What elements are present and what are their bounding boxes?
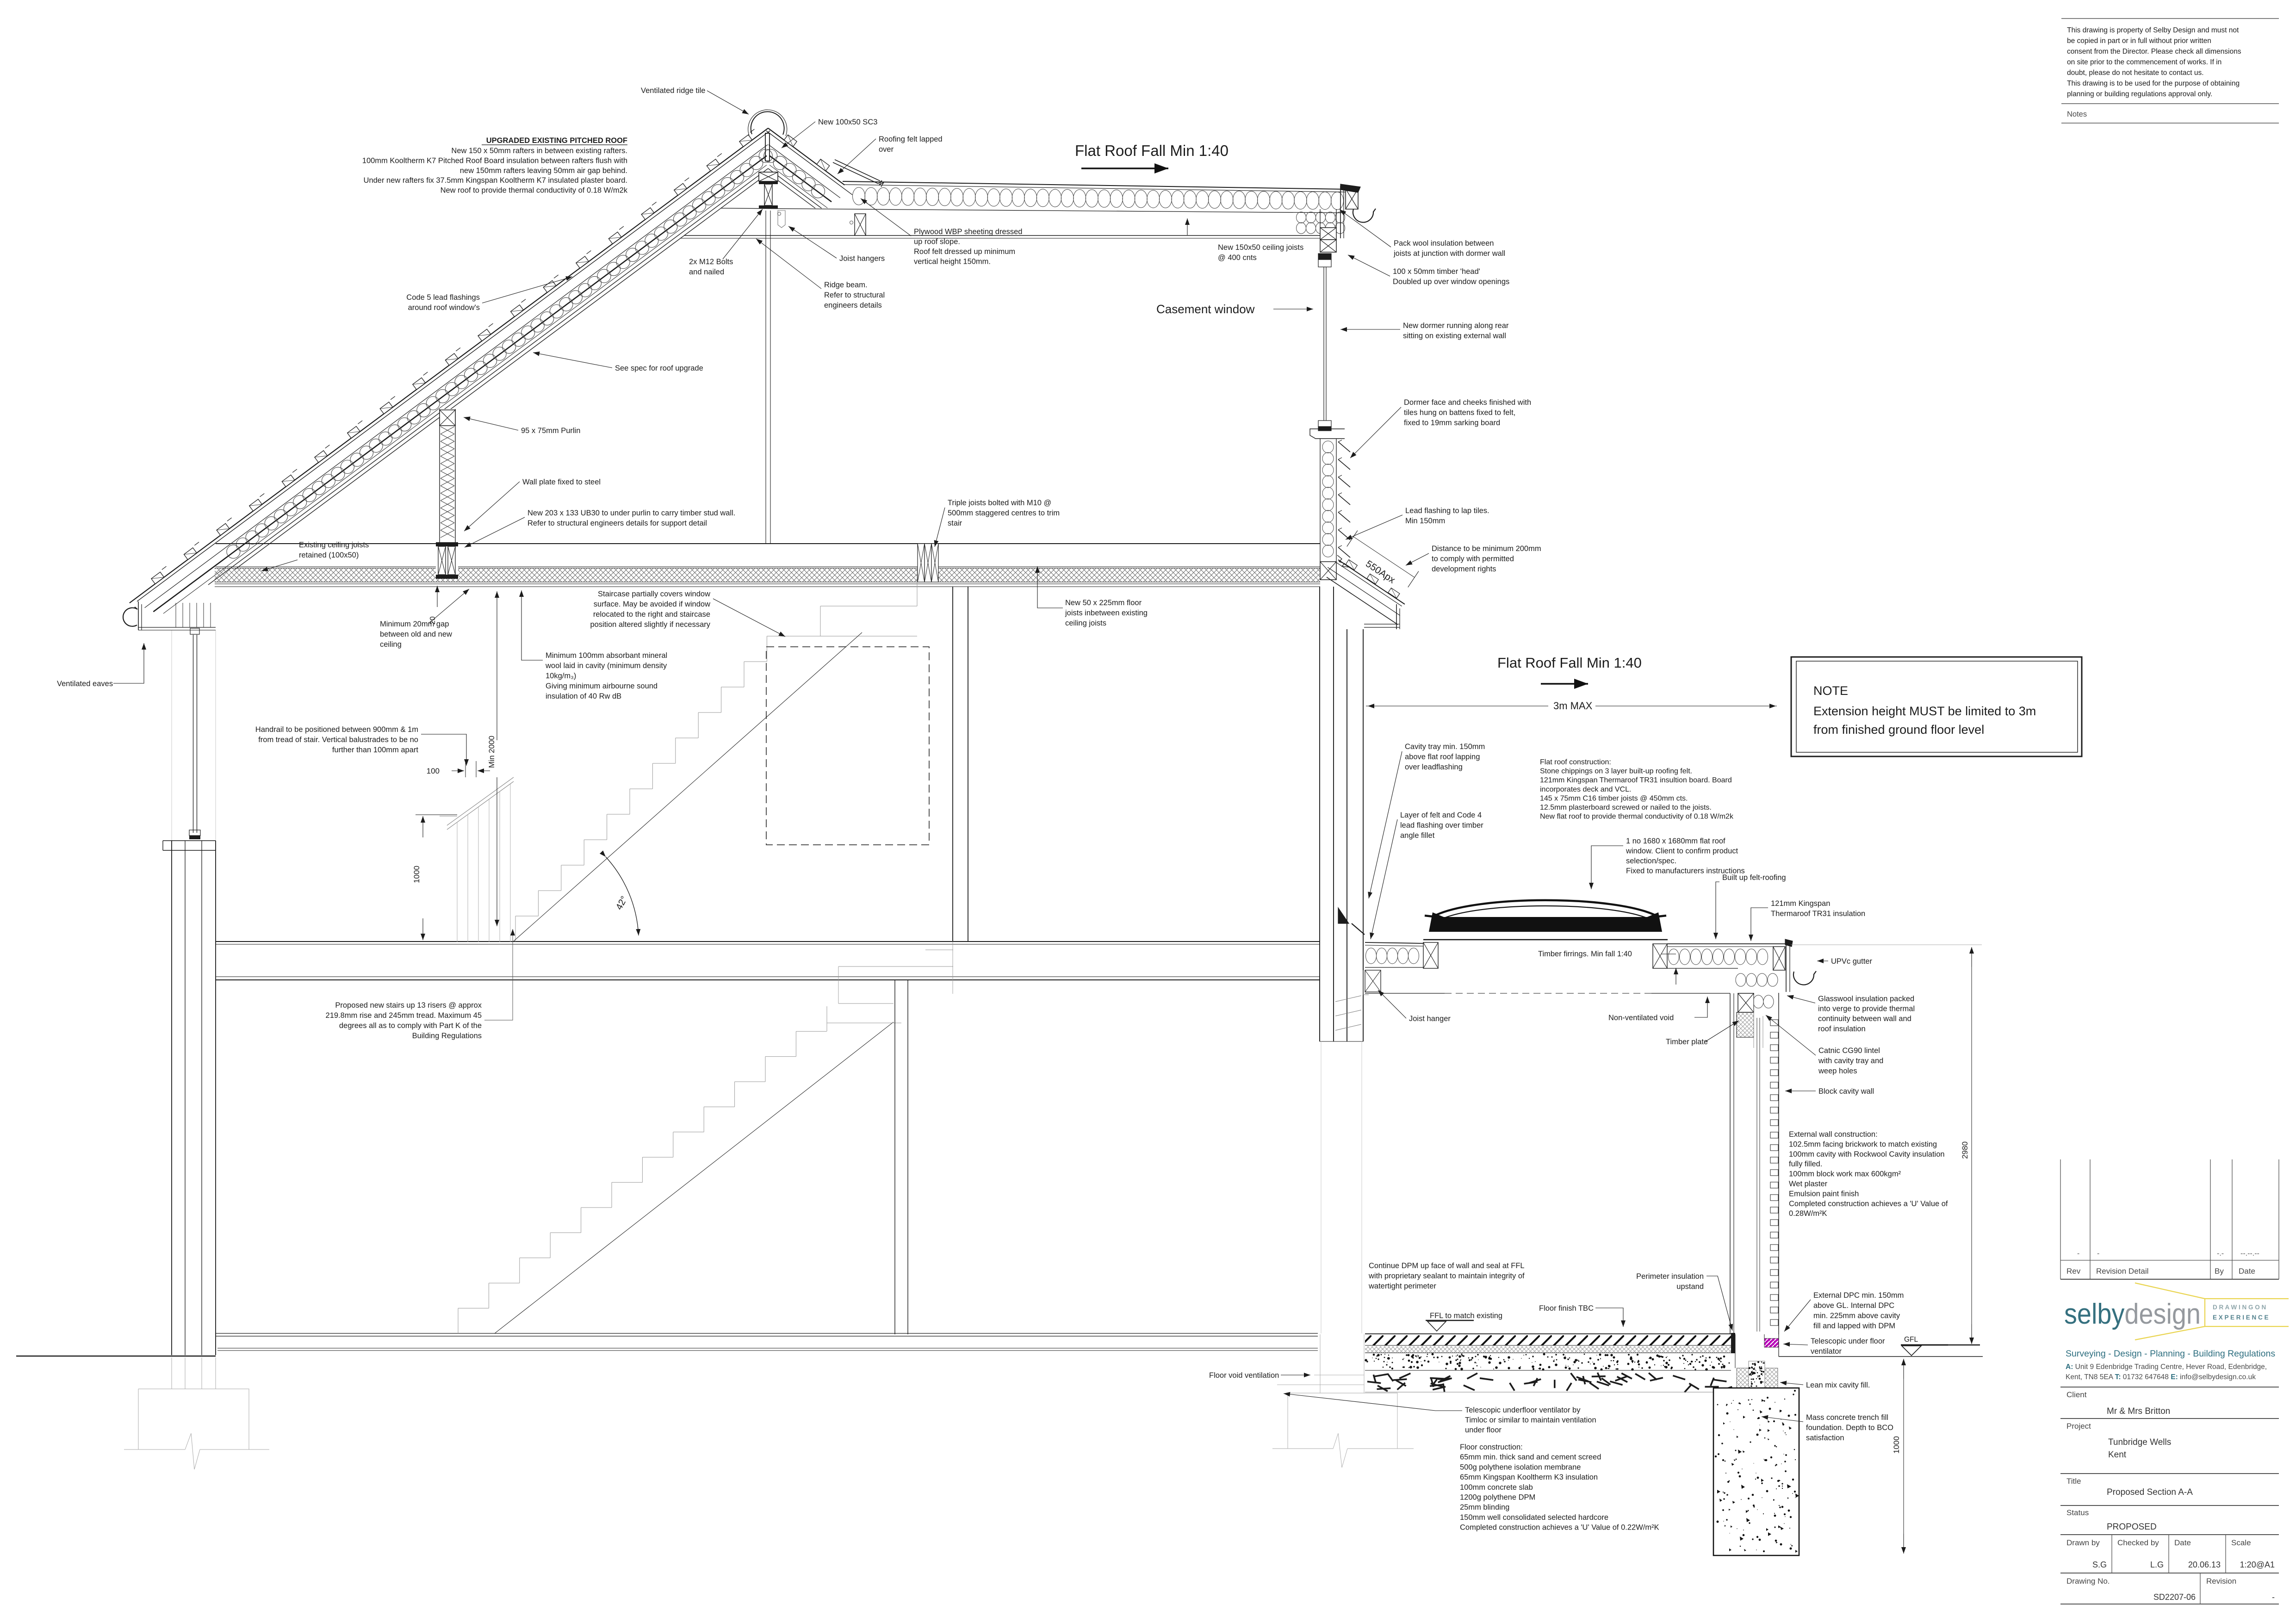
svg-text:between old and new: between old and new bbox=[380, 630, 452, 638]
svg-text:lead flashing over timber: lead flashing over timber bbox=[1400, 821, 1483, 830]
svg-text:External wall construction:: External wall construction: bbox=[1789, 1130, 1878, 1139]
svg-text:-.-: -.- bbox=[2217, 1250, 2224, 1258]
svg-text:New 203 x 133 UB30 to under pu: New 203 x 133 UB30 to under purlin to ca… bbox=[527, 509, 735, 517]
svg-text:Drawing No.: Drawing No. bbox=[2066, 1577, 2110, 1586]
svg-text:Block cavity wall: Block cavity wall bbox=[1818, 1087, 1874, 1096]
svg-text:@ 400 cnts: @ 400 cnts bbox=[1218, 254, 1257, 262]
svg-text:with cavity tray and: with cavity tray and bbox=[1818, 1057, 1883, 1065]
svg-text:Wet plaster: Wet plaster bbox=[1789, 1180, 1828, 1188]
svg-text:Surveying - Design - Planning: Surveying - Design - Planning - Building… bbox=[2066, 1349, 2275, 1359]
svg-text:Non-ventilated void: Non-ventilated void bbox=[1608, 1014, 1674, 1022]
svg-text:Ventilated eaves: Ventilated eaves bbox=[57, 680, 113, 688]
svg-text:fixed to 19mm sarking board: fixed to 19mm sarking board bbox=[1404, 419, 1500, 427]
svg-text:UPGRADED EXISTING PITCHED ROOF: UPGRADED EXISTING PITCHED ROOF bbox=[486, 136, 627, 145]
svg-text:relocated to the right and sta: relocated to the right and staircase bbox=[593, 610, 710, 619]
svg-text:95 x 75mm Purlin: 95 x 75mm Purlin bbox=[521, 427, 580, 435]
svg-text:145 x 75mm C16 timber joists: 145 x 75mm C16 timber joists @ 450mm cts… bbox=[1540, 794, 1688, 802]
svg-text:Ventilated ridge tile: Ventilated ridge tile bbox=[641, 87, 705, 95]
svg-text:Built up felt-roofing: Built up felt-roofing bbox=[1722, 873, 1786, 882]
svg-text:121mm Kingspan Thermaroof TR31: 121mm Kingspan Thermaroof TR31 insultion… bbox=[1540, 776, 1732, 784]
svg-text:Minimum 100mm absorbant minera: Minimum 100mm absorbant mineral bbox=[546, 651, 667, 660]
svg-text:new 150mm rafters leaving 50mm: new 150mm rafters leaving 50mm air gap b… bbox=[460, 167, 627, 175]
svg-text:100mm Kooltherm K7 Pitched Roo: 100mm Kooltherm K7 Pitched Roof Board in… bbox=[362, 156, 627, 165]
svg-text:Continue DPM up face of wall a: Continue DPM up face of wall and seal at… bbox=[1369, 1262, 1525, 1270]
svg-text:Building Regulations: Building Regulations bbox=[412, 1032, 482, 1040]
svg-text:selection/spec.: selection/spec. bbox=[1626, 857, 1676, 865]
svg-text:Emulsion paint finish: Emulsion paint finish bbox=[1789, 1189, 1859, 1198]
svg-text:Handrail to be positioned betw: Handrail to be positioned between 900mm … bbox=[255, 725, 418, 734]
svg-text:stair: stair bbox=[948, 519, 962, 527]
svg-text:upstand: upstand bbox=[1676, 1282, 1704, 1291]
svg-text:selbydesign: selbydesign bbox=[2064, 1298, 2201, 1330]
svg-text:joists at junction with dormer: joists at junction with dormer wall bbox=[1393, 249, 1505, 258]
svg-text:150mm well consolidated select: 150mm well consolidated selected hardcor… bbox=[1460, 1513, 1608, 1522]
svg-text:FFL to match existing: FFL to match existing bbox=[1430, 1312, 1502, 1320]
svg-text:Proposed new stairs up 13 rise: Proposed new stairs up 13 risers @ appro… bbox=[335, 1001, 482, 1010]
svg-text:Doubled up over window opening: Doubled up over window openings bbox=[1393, 278, 1509, 286]
svg-text:New dormer running along rear: New dormer running along rear bbox=[1403, 322, 1509, 330]
svg-text:E X P E R I E N C E: E X P E R I E N C E bbox=[2213, 1314, 2269, 1321]
svg-text:tiles hung on battens fixed to: tiles hung on battens fixed to felt, bbox=[1404, 409, 1515, 417]
svg-text:Flat Roof Fall Min 1:40: Flat Roof Fall Min 1:40 bbox=[1497, 655, 1642, 671]
svg-text:Floor void ventilation: Floor void ventilation bbox=[1209, 1371, 1279, 1380]
svg-text:vertical height 150mm.: vertical height 150mm. bbox=[914, 258, 991, 266]
svg-text:above GL. Internal DPC: above GL. Internal DPC bbox=[1813, 1301, 1894, 1310]
svg-text:Wall plate fixed to steel: Wall plate fixed to steel bbox=[522, 478, 601, 486]
svg-text:Flat Roof Fall Min 1:40: Flat Roof Fall Min 1:40 bbox=[1075, 142, 1229, 159]
svg-text:foundation. Depth to BCO: foundation. Depth to BCO bbox=[1806, 1424, 1893, 1432]
svg-text:New 100x50 SC3: New 100x50 SC3 bbox=[818, 118, 877, 126]
svg-text:Catnic CG90 lintel: Catnic CG90 lintel bbox=[1818, 1047, 1880, 1055]
svg-text:weep holes: weep holes bbox=[1818, 1067, 1857, 1075]
svg-text:Timber plate: Timber plate bbox=[1666, 1038, 1708, 1046]
svg-text:3m MAX: 3m MAX bbox=[1553, 700, 1593, 712]
svg-text:incorporates deck and VCL.: incorporates deck and VCL. bbox=[1540, 786, 1631, 793]
svg-text:Telescopic under floor: Telescopic under floor bbox=[1811, 1337, 1885, 1345]
svg-text:Minimum 20mm gap: Minimum 20mm gap bbox=[380, 620, 449, 628]
svg-text:min. 225mm above cavity: min. 225mm above cavity bbox=[1813, 1312, 1900, 1320]
svg-text:Min 150mm: Min 150mm bbox=[1405, 517, 1445, 525]
svg-text:Glasswool insulation packed: Glasswool insulation packed bbox=[1818, 995, 1914, 1003]
svg-text:1200g polythene DPM: 1200g polythene DPM bbox=[1460, 1493, 1535, 1502]
svg-text:20.06.13: 20.06.13 bbox=[2188, 1560, 2221, 1569]
svg-text:fill and lapped with DPM: fill and lapped with DPM bbox=[1813, 1322, 1895, 1330]
svg-text:Status: Status bbox=[2066, 1508, 2089, 1517]
svg-text:S.G: S.G bbox=[2092, 1560, 2107, 1569]
svg-text:on site prior to the commencem: on site prior to the commencement of wor… bbox=[2067, 58, 2222, 66]
svg-text:Scale: Scale bbox=[2231, 1538, 2251, 1547]
svg-text:watertight perimeter: watertight perimeter bbox=[1368, 1282, 1436, 1290]
svg-text:New 150 x 50mm rafters in betw: New 150 x 50mm rafters in between existi… bbox=[451, 147, 627, 155]
svg-text:Telescopic underfloor ventilat: Telescopic underfloor ventilator by bbox=[1465, 1406, 1581, 1414]
svg-text:sitting on existing external w: sitting on existing external wall bbox=[1403, 332, 1506, 340]
svg-text:Completed construction achieve: Completed construction achieves a 'U' Va… bbox=[1460, 1524, 1659, 1532]
svg-text:100 x 50mm timber 'head': 100 x 50mm timber 'head' bbox=[1393, 267, 1480, 276]
svg-text:ventilator: ventilator bbox=[1811, 1347, 1842, 1356]
svg-text:25mm blinding: 25mm blinding bbox=[1460, 1503, 1509, 1511]
svg-text:Refer to structural: Refer to structural bbox=[824, 291, 885, 299]
svg-text:joists inbetween existing: joists inbetween existing bbox=[1065, 609, 1148, 617]
svg-text:New 50 x 225mm floor: New 50 x 225mm floor bbox=[1065, 599, 1142, 607]
svg-text:surface. May be avoided if win: surface. May be avoided if window bbox=[594, 600, 710, 608]
svg-text:D R A W I N G O N: D R A W I N G O N bbox=[2213, 1304, 2266, 1311]
svg-text:retained (100x50): retained (100x50) bbox=[299, 551, 359, 559]
svg-text:UPVc gutter: UPVc gutter bbox=[1831, 957, 1872, 966]
svg-text:New 150x50 ceiling joists: New 150x50 ceiling joists bbox=[1218, 243, 1303, 252]
svg-text:Kent: Kent bbox=[2108, 1450, 2127, 1460]
svg-text:satisfaction: satisfaction bbox=[1806, 1434, 1844, 1442]
svg-text:Date: Date bbox=[2174, 1538, 2191, 1547]
svg-text:Title: Title bbox=[2066, 1477, 2081, 1486]
svg-text:Mass concrete trench fill: Mass concrete trench fill bbox=[1806, 1413, 1888, 1422]
svg-text:Triple joists bolted with M10: Triple joists bolted with M10 @ bbox=[948, 499, 1051, 507]
svg-text:GFL: GFL bbox=[1904, 1336, 1918, 1344]
svg-text:Staircase partially covers win: Staircase partially covers window bbox=[598, 590, 710, 598]
svg-text:Under new rafters fix 37.5mm K: Under new rafters fix 37.5mm Kingspan Ko… bbox=[364, 176, 627, 185]
svg-text:Project: Project bbox=[2066, 1422, 2091, 1431]
svg-text:further than 100mm apart: further than 100mm apart bbox=[332, 746, 419, 754]
svg-text:Drawn by: Drawn by bbox=[2066, 1538, 2100, 1547]
svg-text:12.5mm plasterboard screwed or: 12.5mm plasterboard screwed or nailed to… bbox=[1540, 804, 1712, 811]
svg-text:Proposed Section A-A: Proposed Section A-A bbox=[2107, 1487, 2193, 1497]
svg-text:Revision Detail: Revision Detail bbox=[2096, 1267, 2148, 1276]
svg-text:Layer of felt and Code 4: Layer of felt and Code 4 bbox=[1400, 811, 1482, 819]
svg-text:roof insulation: roof insulation bbox=[1818, 1025, 1866, 1033]
svg-text:under floor: under floor bbox=[1465, 1426, 1502, 1434]
svg-text:continuity between wall and: continuity between wall and bbox=[1818, 1015, 1911, 1023]
svg-text:ceiling joists: ceiling joists bbox=[1065, 619, 1106, 627]
svg-text:10kg/m₃): 10kg/m₃) bbox=[546, 672, 576, 680]
svg-text:Min 2000: Min 2000 bbox=[487, 736, 496, 768]
svg-text:Floor finish TBC: Floor finish TBC bbox=[1539, 1304, 1594, 1313]
svg-text:NOTE: NOTE bbox=[1813, 684, 1848, 698]
svg-text:0.28W/m²K: 0.28W/m²K bbox=[1789, 1209, 1827, 1218]
svg-text:Mr & Mrs Britton: Mr & Mrs Britton bbox=[2107, 1406, 2170, 1416]
svg-text:1:20@A1: 1:20@A1 bbox=[2240, 1560, 2275, 1569]
svg-text:wool laid in cavity (minimum d: wool laid in cavity (minimum density bbox=[545, 662, 667, 670]
svg-text:100mm block work max 600kgm²: 100mm block work max 600kgm² bbox=[1789, 1170, 1901, 1178]
svg-text:Thermaroof TR31 insulation: Thermaroof TR31 insulation bbox=[1771, 910, 1865, 918]
svg-text:See spec for roof upgrade: See spec for roof upgrade bbox=[615, 364, 703, 372]
svg-text:65mm min. thick sand and cemen: 65mm min. thick sand and cement screed bbox=[1460, 1453, 1601, 1462]
svg-text:L.G: L.G bbox=[2150, 1560, 2164, 1569]
svg-text:over leadflashing: over leadflashing bbox=[1405, 763, 1463, 771]
svg-text:PROPOSED: PROPOSED bbox=[2107, 1522, 2157, 1532]
svg-text:Roof felt dressed up minimum: Roof felt dressed up minimum bbox=[914, 248, 1015, 256]
svg-text:2x M12 Bolts: 2x M12 Bolts bbox=[689, 258, 733, 266]
svg-text:Joist hanger: Joist hanger bbox=[1409, 1015, 1451, 1023]
svg-text:planning or building regulatio: planning or building regulations approva… bbox=[2067, 90, 2212, 98]
svg-text:By: By bbox=[2215, 1267, 2224, 1276]
svg-text:100mm cavity with Rockwool Cav: 100mm cavity with Rockwool Cavity insula… bbox=[1789, 1150, 1945, 1158]
svg-text:Floor construction:: Floor construction: bbox=[1460, 1443, 1523, 1451]
svg-text:65mm Kingspan Kooltherm K3 ins: 65mm Kingspan Kooltherm K3 insulation bbox=[1460, 1473, 1598, 1481]
svg-text:Pack wool insulation between: Pack wool insulation between bbox=[1394, 239, 1494, 248]
svg-text:Revision: Revision bbox=[2206, 1577, 2236, 1586]
svg-text:fully filled.: fully filled. bbox=[1789, 1160, 1822, 1168]
svg-text:-: - bbox=[2077, 1250, 2079, 1258]
svg-text:and nailed: and nailed bbox=[689, 268, 724, 276]
svg-text:Date: Date bbox=[2239, 1267, 2255, 1276]
svg-text:Tunbridge Wells: Tunbridge Wells bbox=[2108, 1437, 2171, 1447]
svg-text:Perimeter insulation: Perimeter insulation bbox=[1636, 1272, 1704, 1281]
svg-text:Joist hangers: Joist hangers bbox=[839, 254, 885, 263]
svg-text:121mm Kingspan: 121mm Kingspan bbox=[1771, 899, 1830, 908]
svg-text:Code 5 lead flashings: Code 5 lead flashings bbox=[406, 293, 480, 302]
svg-text:SD2207-06: SD2207-06 bbox=[2153, 1592, 2196, 1602]
svg-text:100: 100 bbox=[427, 767, 440, 775]
svg-text:engineers details: engineers details bbox=[824, 301, 882, 310]
svg-text:Stone chippings on 3 layer bui: Stone chippings on 3 layer built-up roof… bbox=[1540, 768, 1692, 775]
svg-text:Notes: Notes bbox=[2067, 110, 2087, 118]
svg-text:angle fillet: angle fillet bbox=[1400, 831, 1435, 840]
svg-text:position altered slightly if n: position altered slightly if necessary bbox=[590, 620, 710, 629]
svg-text:--.--.--: --.--.-- bbox=[2240, 1250, 2259, 1258]
svg-text:1000: 1000 bbox=[412, 866, 421, 883]
svg-text:This drawing is to be used for: This drawing is to be used for the purpo… bbox=[2067, 80, 2240, 87]
svg-text:New flat roof to provide therm: New flat roof to provide thermal conduct… bbox=[1540, 813, 1734, 821]
svg-text:from tread of stair. Vertical: from tread of stair. Vertical balustrade… bbox=[258, 736, 418, 744]
svg-text:Plywood WBP sheeting dressed: Plywood WBP sheeting dressed bbox=[914, 228, 1023, 236]
svg-text:around roof window's: around roof window's bbox=[408, 304, 480, 312]
svg-text:A: Unit 9 Edenbridge Trading C: A: Unit 9 Edenbridge Trading Centre, Hev… bbox=[2066, 1363, 2267, 1371]
svg-text:ceiling: ceiling bbox=[380, 640, 402, 649]
svg-text:Timloc or similar to maintain: Timloc or similar to maintain ventilatio… bbox=[1465, 1416, 1596, 1425]
svg-text:Checked by: Checked by bbox=[2117, 1538, 2159, 1547]
svg-text:102.5mm facing brickwork to ma: 102.5mm facing brickwork to match existi… bbox=[1789, 1140, 1937, 1148]
svg-text:Completed construction achieve: Completed construction achieves a 'U' Va… bbox=[1789, 1200, 1948, 1208]
svg-text:Casement window: Casement window bbox=[1156, 302, 1255, 316]
svg-text:be copied in part or in full w: be copied in part or in full without pri… bbox=[2067, 37, 2211, 45]
svg-text:degrees all as to comply with: degrees all as to comply with Part K of … bbox=[339, 1022, 482, 1030]
svg-text:This drawing is property of Se: This drawing is property of Selby Design… bbox=[2067, 26, 2239, 34]
svg-text:to comply with permitted: to comply with permitted bbox=[1432, 555, 1514, 563]
svg-text:Dormer face and cheeks finishe: Dormer face and cheeks finished with bbox=[1404, 398, 1531, 407]
svg-text:insulation of 40 Rw dB: insulation of 40 Rw dB bbox=[546, 692, 621, 700]
svg-text:development rights: development rights bbox=[1432, 565, 1496, 573]
svg-text:over: over bbox=[879, 145, 894, 154]
svg-text:Kent, TN8 5EA T: 01732 64764: Kent, TN8 5EA T: 01732 647648 E: info@se… bbox=[2066, 1373, 2256, 1381]
svg-text:with proprietary sealant to ma: with proprietary sealant to maintain int… bbox=[1368, 1272, 1525, 1280]
svg-text:Cavity tray min. 150mm: Cavity tray min. 150mm bbox=[1405, 743, 1485, 751]
svg-text:100mm concrete slab: 100mm concrete slab bbox=[1460, 1483, 1533, 1492]
svg-text:consent from the Director. Ple: consent from the Director. Please check … bbox=[2067, 48, 2241, 56]
svg-text:2980: 2980 bbox=[1961, 1141, 1969, 1159]
svg-text:Roofing felt lapped: Roofing felt lapped bbox=[879, 135, 943, 143]
svg-text:External DPC min. 150mm: External DPC min. 150mm bbox=[1813, 1291, 1904, 1300]
svg-text:500g polythene isolation membr: 500g polythene isolation membrane bbox=[1460, 1463, 1581, 1471]
svg-text:1 no 1680 x 1680mm flat roof: 1 no 1680 x 1680mm flat roof bbox=[1626, 837, 1725, 845]
svg-text:Giving minimum airbourne sound: Giving minimum airbourne sound bbox=[546, 682, 658, 690]
svg-text:-: - bbox=[2097, 1250, 2099, 1258]
svg-text:from finished ground floor lev: from finished ground floor level bbox=[1813, 723, 1984, 737]
svg-text:above flat roof lapping: above flat roof lapping bbox=[1405, 753, 1480, 761]
svg-text:window. Client to confirm prod: window. Client to confirm product bbox=[1626, 847, 1738, 855]
svg-text:Refer to structural engineers: Refer to structural engineers details fo… bbox=[527, 519, 707, 527]
svg-text:Extension height MUST be limit: Extension height MUST be limited to 3m bbox=[1813, 704, 2036, 718]
svg-text:1000: 1000 bbox=[1892, 1436, 1901, 1454]
svg-text:Distance to be minimum 200mm: Distance to be minimum 200mm bbox=[1432, 545, 1541, 553]
svg-text:Existing ceiling joists: Existing ceiling joists bbox=[299, 541, 369, 549]
svg-text:Rev: Rev bbox=[2066, 1267, 2081, 1276]
svg-text:up roof slope.: up roof slope. bbox=[914, 238, 960, 246]
svg-text:Ridge beam.: Ridge beam. bbox=[824, 281, 868, 289]
svg-text:Timber firrings. Min fall 1:40: Timber firrings. Min fall 1:40 bbox=[1538, 950, 1632, 958]
svg-text:doubt, please do not hesitate: doubt, please do not hesitate to contact… bbox=[2067, 69, 2204, 77]
svg-text:Lean mix cavity fill.: Lean mix cavity fill. bbox=[1806, 1381, 1870, 1389]
svg-text:500mm staggered centres to tri: 500mm staggered centres to trim bbox=[948, 509, 1060, 517]
svg-text:Lead flashing to lap tiles.: Lead flashing to lap tiles. bbox=[1405, 507, 1489, 515]
svg-text:New roof to provide thermal co: New roof to provide thermal conductivity… bbox=[441, 186, 628, 195]
svg-text:219.8mm rise and 245mm tread.: 219.8mm rise and 245mm tread. Maximum 45 bbox=[326, 1011, 482, 1020]
svg-text:Flat roof construction:: Flat roof construction: bbox=[1540, 758, 1611, 766]
svg-text:into verge to provide thermal: into verge to provide thermal bbox=[1818, 1005, 1915, 1013]
svg-text:-: - bbox=[2272, 1592, 2275, 1602]
svg-text:Client: Client bbox=[2066, 1390, 2087, 1399]
